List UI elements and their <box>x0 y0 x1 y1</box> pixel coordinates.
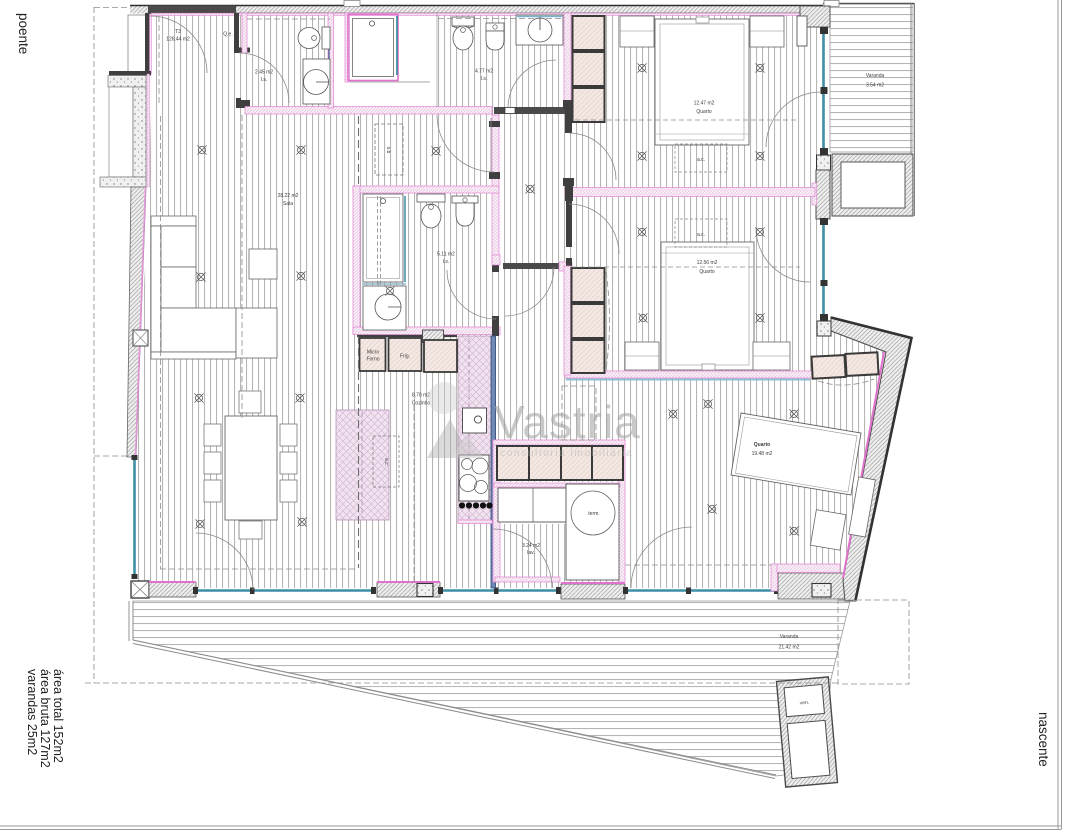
svg-text:área total 152m2: área total 152m2 <box>51 669 65 763</box>
svg-text:21.42 m2: 21.42 m2 <box>779 645 800 651</box>
svg-text:ven.: ven. <box>800 700 810 707</box>
svg-text:Q.e.: Q.e. <box>223 32 232 38</box>
svg-text:Quarto: Quarto <box>754 442 770 448</box>
svg-text:Frig.: Frig. <box>400 354 410 360</box>
svg-text:term.: term. <box>588 511 599 517</box>
svg-text:nascente: nascente <box>1036 712 1051 767</box>
svg-text:a.c.: a.c. <box>697 157 705 163</box>
svg-text:a.c.: a.c. <box>697 232 705 238</box>
svg-text:s.b: s.b <box>385 147 391 154</box>
svg-text:I.s.: I.s. <box>481 76 488 82</box>
svg-text:a.c.: a.c. <box>383 458 389 466</box>
svg-text:área bruta 127m2: área bruta 127m2 <box>38 669 52 768</box>
svg-text:3.54 m2: 3.54 m2 <box>866 83 884 89</box>
svg-text:8.70 m2: 8.70 m2 <box>412 393 430 399</box>
svg-text:I.s.: I.s. <box>261 77 268 83</box>
svg-text:4.77 m2: 4.77 m2 <box>475 69 493 75</box>
svg-text:5.11 m2: 5.11 m2 <box>437 252 455 258</box>
svg-text:varandas 25m2: varandas 25m2 <box>25 669 39 755</box>
svg-text:12.47 m2: 12.47 m2 <box>694 101 715 107</box>
svg-text:Forno: Forno <box>366 357 379 363</box>
svg-text:Quarto: Quarto <box>696 109 712 115</box>
svg-text:28.22 m2: 28.22 m2 <box>278 193 299 199</box>
svg-text:Sala: Sala <box>283 201 293 207</box>
svg-text:19.48 m2: 19.48 m2 <box>752 451 773 457</box>
svg-text:Cozinha: Cozinha <box>412 401 431 407</box>
svg-text:poente: poente <box>16 13 31 54</box>
svg-text:lav.: lav. <box>527 550 534 556</box>
svg-text:Varanda: Varanda <box>866 73 885 79</box>
svg-text:I.s.: I.s. <box>443 259 450 265</box>
svg-text:3.24 m2: 3.24 m2 <box>522 543 540 549</box>
svg-text:Vastria: Vastria <box>494 396 641 448</box>
svg-text:Quarto: Quarto <box>699 269 715 275</box>
svg-text:consultoria imobiliária: consultoria imobiliária <box>500 447 633 459</box>
svg-text:T3: T3 <box>175 29 181 35</box>
svg-text:126.44 m2: 126.44 m2 <box>166 37 190 43</box>
svg-text:2.45 m2: 2.45 m2 <box>255 70 273 76</box>
svg-text:Varanda: Varanda <box>780 634 799 640</box>
svg-text:Micro: Micro <box>367 350 379 356</box>
svg-text:12.56 m2: 12.56 m2 <box>697 260 718 266</box>
